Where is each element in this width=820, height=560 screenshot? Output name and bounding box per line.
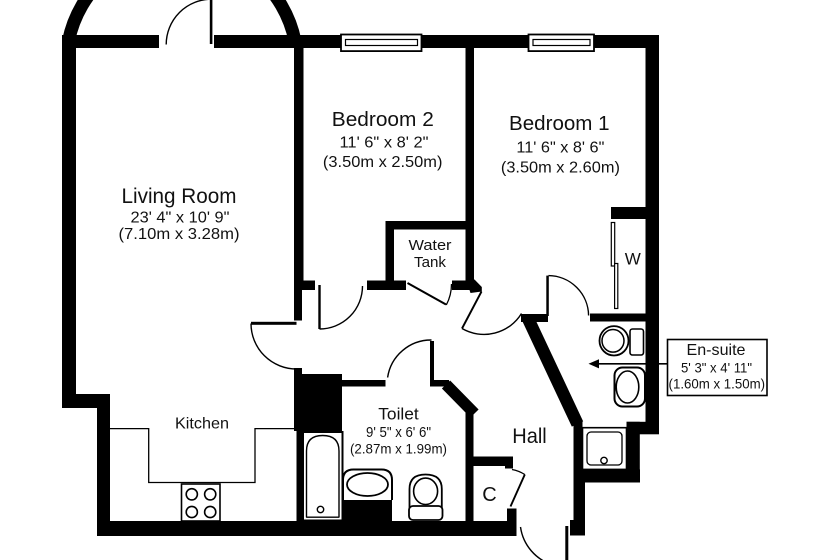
svg-text:Hall: Hall — [512, 425, 547, 448]
svg-text:C: C — [482, 484, 496, 506]
svg-text:En-suite: En-suite — [687, 342, 746, 359]
svg-text:23' 4" x 10' 9": 23' 4" x 10' 9" — [131, 210, 230, 227]
svg-text:(7.10m x 3.28m): (7.10m x 3.28m) — [119, 226, 240, 243]
svg-text:11' 6" x 8' 6": 11' 6" x 8' 6" — [516, 140, 604, 157]
svg-text:Bedroom 1: Bedroom 1 — [509, 113, 610, 135]
svg-text:(1.60m x 1.50m): (1.60m x 1.50m) — [669, 376, 766, 392]
svg-text:(2.87m x 1.99m): (2.87m x 1.99m) — [350, 441, 447, 457]
svg-text:(3.50m x 2.60m): (3.50m x 2.60m) — [501, 160, 620, 177]
svg-text:5' 3" x 4' 11": 5' 3" x 4' 11" — [681, 361, 752, 376]
svg-text:Water: Water — [409, 237, 452, 254]
svg-text:Kitchen: Kitchen — [175, 416, 229, 433]
svg-text:Living Room: Living Room — [122, 185, 237, 208]
svg-text:9' 5" x 6' 6": 9' 5" x 6' 6" — [366, 424, 431, 441]
svg-text:(3.50m x 2.50m): (3.50m x 2.50m) — [323, 154, 443, 171]
svg-text:Bedroom 2: Bedroom 2 — [332, 109, 434, 131]
svg-text:W: W — [625, 250, 641, 269]
svg-text:11' 6" x 8' 2": 11' 6" x 8' 2" — [340, 135, 429, 152]
svg-text:Tank: Tank — [414, 254, 447, 271]
svg-text:Toilet: Toilet — [378, 406, 419, 424]
